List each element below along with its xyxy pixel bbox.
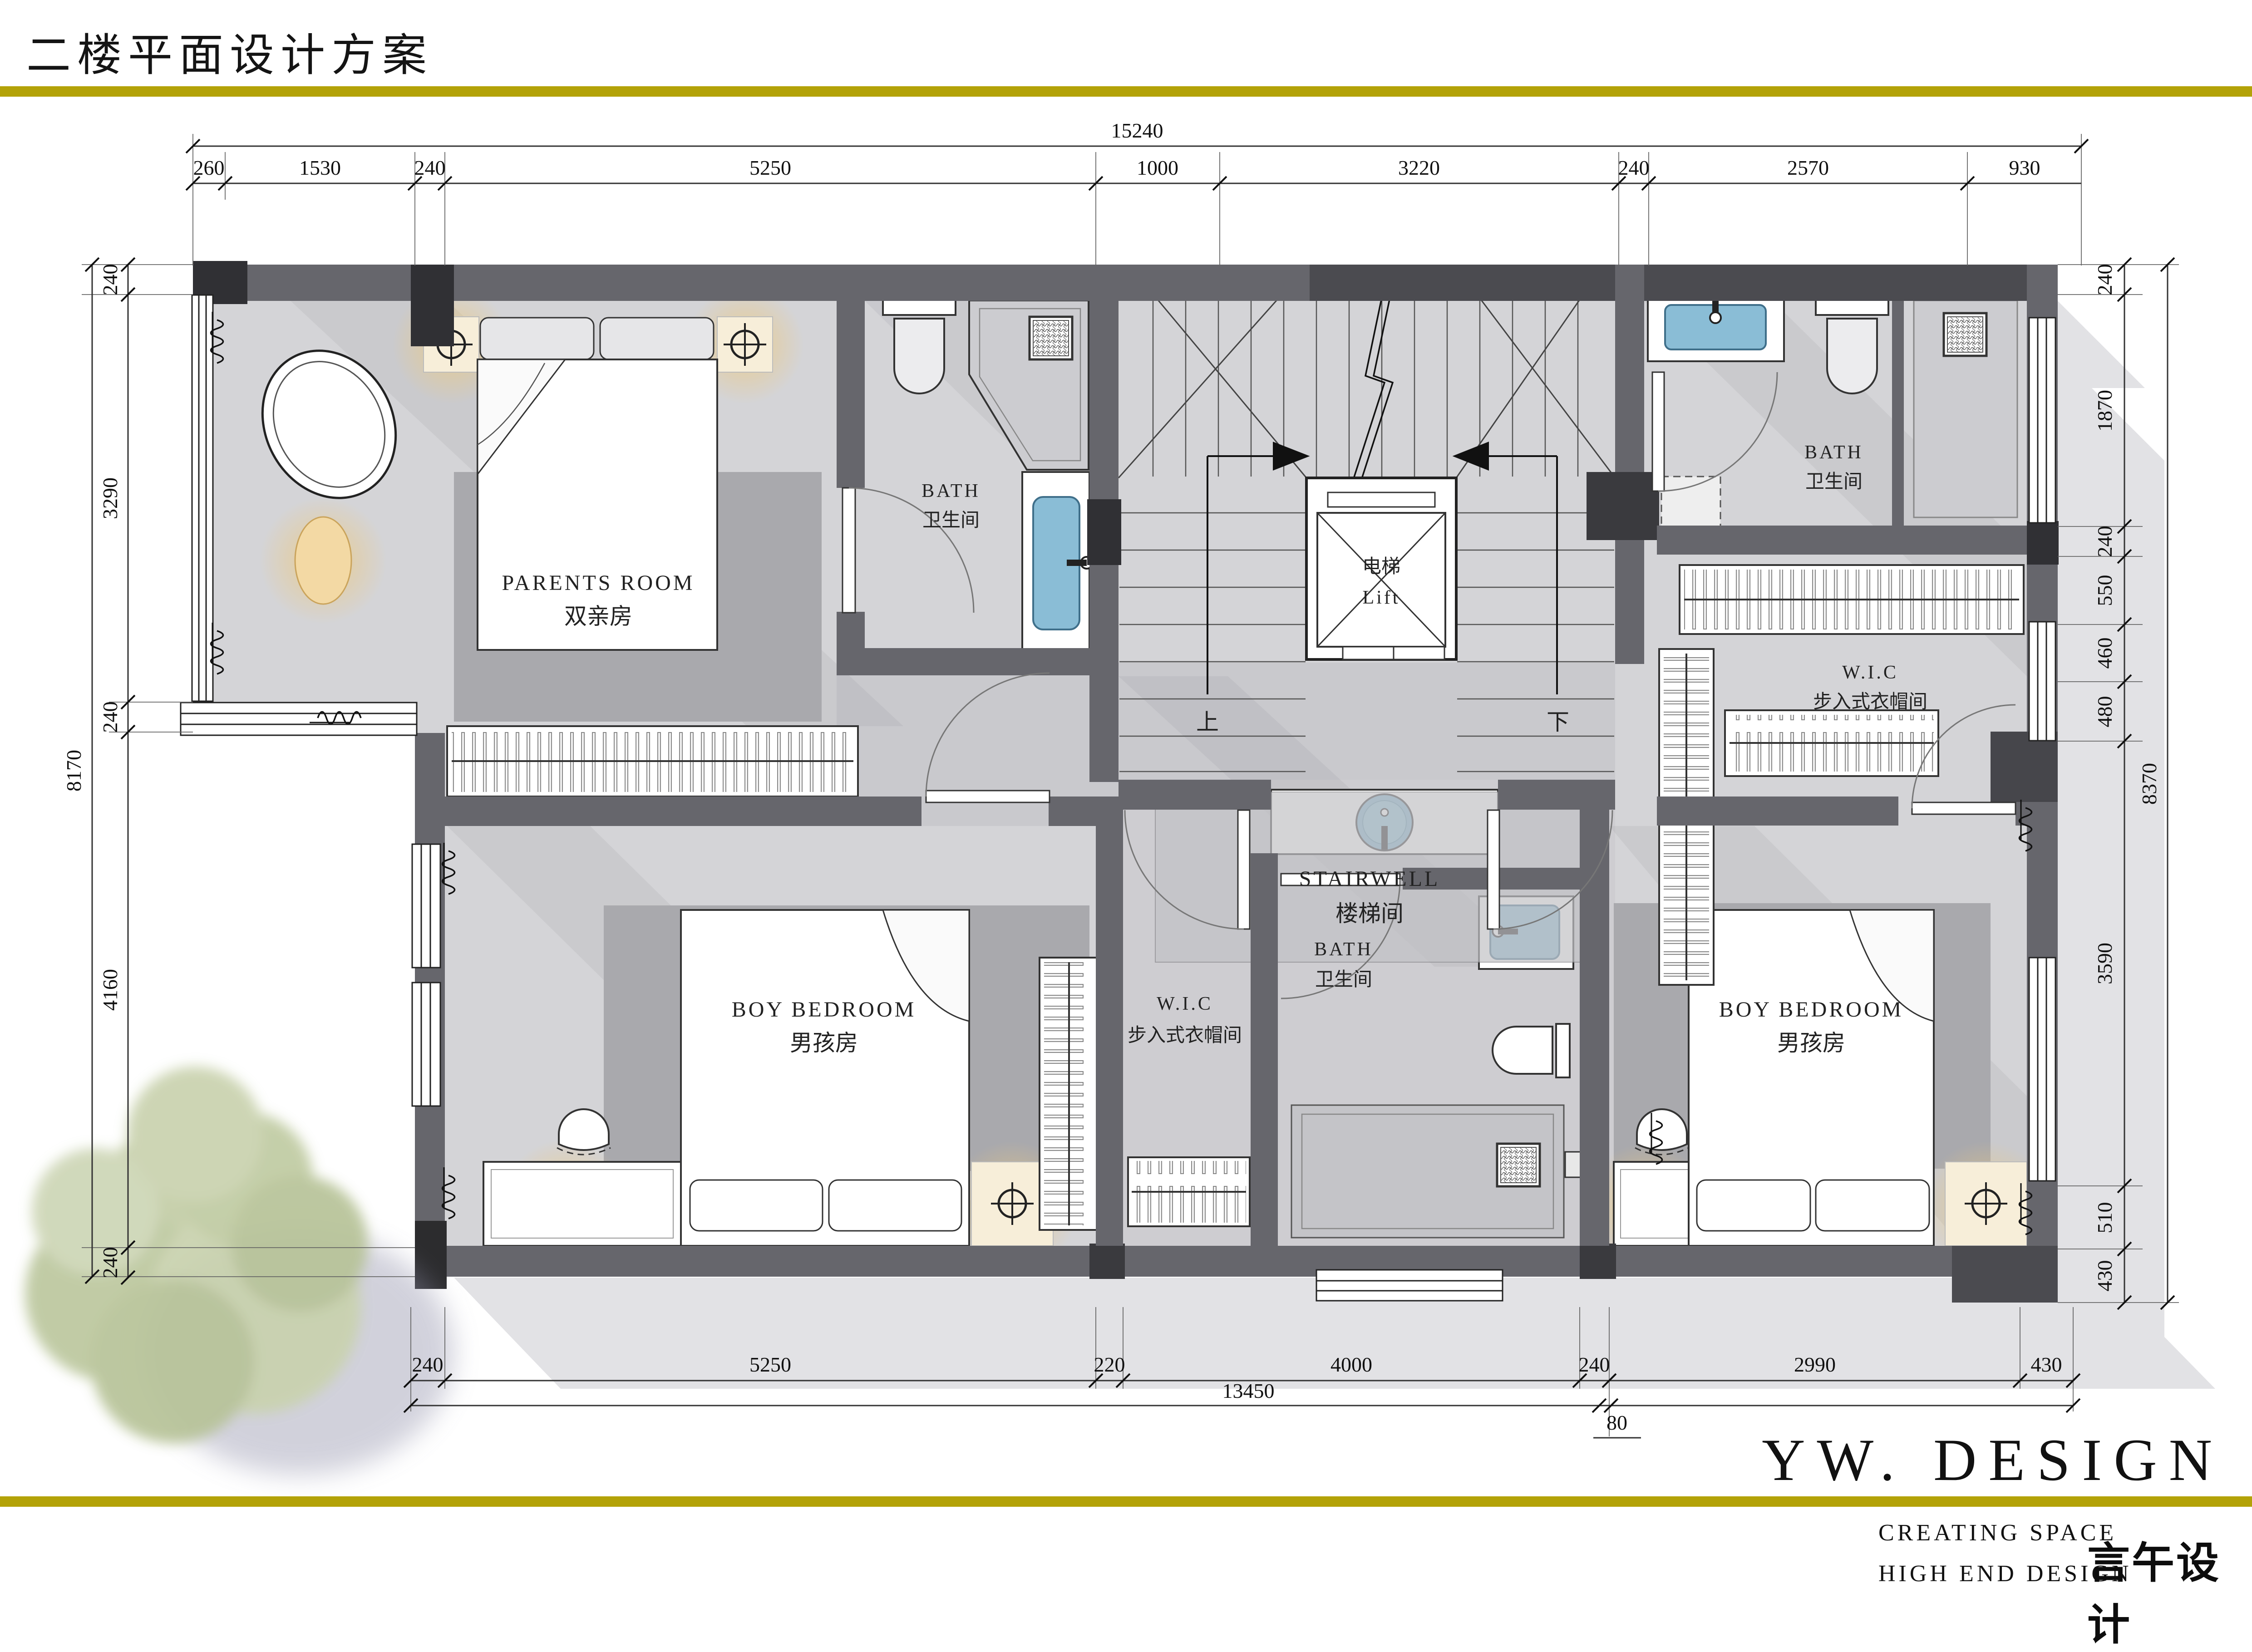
dim-top-7: 2570 [1787, 156, 1829, 179]
brand-tagline-1: CREATING SPACE [1878, 1519, 2117, 1546]
label-stairwell-en: STAIRWELL [1299, 867, 1440, 891]
label-boy2-en: BOY BEDROOM [1719, 998, 1904, 1022]
dim-bottom-0: 240 [412, 1353, 444, 1376]
label-lift-cn: 电梯 [1362, 556, 1400, 577]
dim-top-4: 1000 [1137, 156, 1178, 179]
toilet [1493, 1024, 1570, 1077]
dim-left-2: 240 [99, 702, 122, 733]
label-stair-down: 下 [1547, 709, 1569, 735]
dim-right-2: 240 [2093, 526, 2116, 557]
dim-top-6: 240 [1618, 156, 1650, 179]
dim-top-2: 240 [414, 156, 446, 179]
dim-bottom-total: 13450 [1222, 1379, 1275, 1402]
label-parents-en: PARENTS ROOM [502, 571, 695, 595]
dim-bottom-1: 5250 [749, 1353, 791, 1376]
label-boy1-cn: 男孩房 [790, 1030, 858, 1056]
window [2029, 622, 2055, 741]
bed-parents [478, 318, 717, 650]
dim-right-8: 430 [2093, 1260, 2116, 1292]
label-bath2-en: BATH [1804, 442, 1863, 463]
dim-left-4: 240 [99, 1247, 122, 1278]
window [2029, 318, 2055, 523]
dim-top-0: 260 [193, 156, 225, 179]
label-bath3-cn: 卫生间 [1315, 969, 1372, 990]
bay-window-left [192, 295, 213, 701]
label-stair-up: 上 [1196, 709, 1219, 735]
dim-bottom-5: 2990 [1794, 1353, 1836, 1376]
desk [483, 1162, 681, 1246]
label-wic1-en: W.I.C [1842, 662, 1898, 683]
label-bath1-en: BATH [921, 481, 981, 501]
shower [1291, 1105, 1584, 1238]
dim-bottom-4: 240 [1579, 1353, 1610, 1376]
label-bath1-cn: 卫生间 [922, 509, 980, 531]
dim-left-1: 3290 [99, 477, 122, 519]
label-parents-cn: 双亲房 [564, 604, 632, 629]
label-bath2-cn: 卫生间 [1805, 471, 1863, 492]
sink [1022, 472, 1093, 654]
label-wic1-cn: 步入式衣帽间 [1813, 691, 1927, 712]
sink [1648, 294, 1784, 361]
dim-bottom-3: 4000 [1331, 1353, 1372, 1376]
dim-top-3: 5250 [749, 156, 791, 179]
dim-left-total: 8170 [62, 750, 85, 792]
dim-right-0: 240 [2093, 264, 2116, 295]
dim-right-7: 510 [2093, 1202, 2116, 1234]
dim-left-3: 4160 [99, 969, 122, 1011]
label-wic2-cn: 步入式衣帽间 [1128, 1024, 1242, 1046]
wardrobe-rack [447, 726, 858, 796]
partition [1892, 265, 1904, 528]
label-lift-en: Lift [1363, 587, 1400, 608]
dim-right-5: 480 [2093, 696, 2116, 728]
label-wic2-en: W.I.C [1157, 993, 1213, 1014]
dim-right-4: 460 [2093, 638, 2116, 669]
label-bath3-en: BATH [1314, 939, 1373, 960]
window [412, 844, 440, 968]
wardrobe-rack-vertical [1040, 958, 1099, 1230]
dim-top-1: 1530 [299, 156, 341, 179]
dim-right-3: 550 [2093, 575, 2116, 606]
tree [25, 1067, 454, 1475]
dim-bottom-extra: 80 [1606, 1411, 1627, 1434]
bed-boy2 [1689, 910, 1934, 1246]
shower [1914, 270, 2017, 517]
window [2029, 958, 2055, 1181]
hanger-rack [1680, 565, 2024, 634]
floor-plan: PARENTS ROOM 双亲房 BATH 卫生间 BATH 卫生间 STAIR… [0, 0, 2252, 1592]
steps [1316, 1270, 1503, 1301]
dim-top-8: 930 [2009, 156, 2040, 179]
label-stairwell-cn: 楼梯间 [1335, 901, 1404, 926]
bed-boy1 [681, 910, 969, 1246]
label-boy2-cn: 男孩房 [1777, 1030, 1845, 1056]
dim-right-6: 3590 [2093, 943, 2116, 984]
pouf [295, 517, 351, 604]
balcony-rail [181, 703, 417, 735]
hanger-rack [1725, 710, 1938, 776]
dim-bottom-2: 220 [1094, 1353, 1125, 1376]
dim-top-total: 15240 [1111, 119, 1163, 142]
label-boy1-en: BOY BEDROOM [732, 998, 917, 1022]
dim-bottom-6: 430 [2031, 1353, 2062, 1376]
brand-name-cn: 言午设计 [2087, 1529, 2252, 1652]
dim-right-1: 1870 [2093, 390, 2116, 432]
window [412, 983, 440, 1106]
dim-left-0: 240 [99, 264, 122, 295]
dim-top-5: 3220 [1398, 156, 1440, 179]
brand-logo: YW. DESIGN [1762, 1425, 2224, 1495]
dim-right-total: 8370 [2138, 763, 2161, 805]
accent-bar-bottom [0, 1496, 2252, 1507]
hanger-rack [1128, 1157, 1250, 1226]
